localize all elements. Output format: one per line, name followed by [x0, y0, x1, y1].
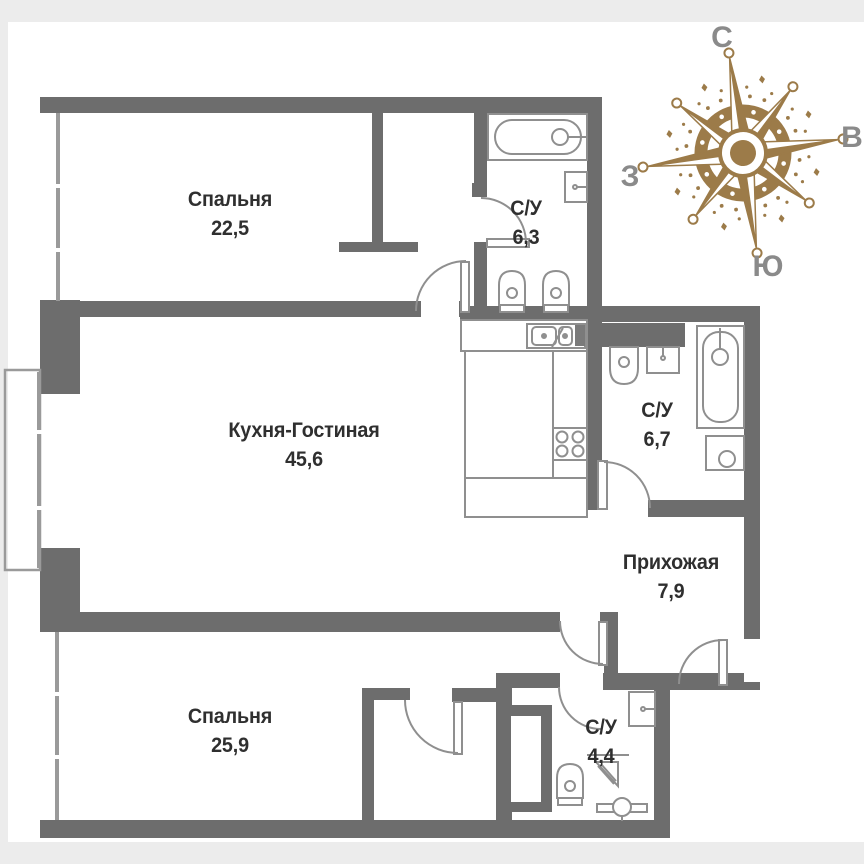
- towel-dryer-icon: [597, 798, 647, 821]
- wall-bedroom1-bottom: [55, 301, 421, 317]
- sink-icon: [565, 172, 587, 202]
- wall-bedroom2-partition: [362, 698, 374, 822]
- bathtub-icon: [488, 114, 587, 160]
- wall-livingroom-bottom: [40, 612, 560, 632]
- kitchen-counter: [461, 320, 587, 517]
- compass-south-label: Ю: [753, 250, 784, 283]
- duct-shaft-inner: [511, 716, 541, 802]
- room-label-bedroom2: Спальня 25,9: [188, 702, 272, 760]
- room-area: 25,9: [188, 731, 272, 760]
- toilet-icon: [499, 271, 525, 312]
- bathtub2-icon: [697, 326, 744, 428]
- room-label-hallway: Прихожая 7,9: [623, 548, 719, 606]
- door-bathroom2: [598, 461, 650, 509]
- entrance-opening: [744, 639, 760, 682]
- pipe-box: [602, 323, 685, 347]
- sink2-icon: [647, 347, 679, 373]
- wall-top: [40, 97, 602, 113]
- toilet2-icon: [610, 347, 638, 384]
- room-name: Спальня: [188, 702, 272, 731]
- wall-bath3-top-left: [512, 673, 560, 688]
- wall-bedroom2-door-segment: [452, 688, 496, 702]
- wall-bath3-right: [654, 688, 670, 822]
- room-area: 4,4: [585, 742, 617, 771]
- room-label-bedroom1: Спальня 22,5: [188, 185, 272, 243]
- room-label-bathroom3: С/У 4,4: [585, 713, 617, 771]
- wall-bedroom2-partition-stub: [362, 688, 410, 700]
- compass-north-label: С: [711, 21, 733, 54]
- wall-bottom: [40, 820, 670, 838]
- sink3-icon: [629, 692, 655, 726]
- wall-bath1-left-lower: [474, 242, 487, 306]
- room-label-kitchen-living: Кухня-Гостиная 45,6: [228, 416, 379, 474]
- kitchen-sink-icon: [527, 324, 585, 348]
- room-label-bathroom2: С/У 6,7: [641, 396, 673, 454]
- room-label-bathroom1: С/У 6,3: [510, 194, 542, 252]
- room-name: Прихожая: [623, 548, 719, 577]
- window-livingroom: [37, 372, 41, 568]
- bidet-icon: [543, 271, 569, 312]
- room-area: 45,6: [228, 445, 379, 474]
- washing-machine-icon: [706, 436, 744, 470]
- wall-partition-bar: [339, 242, 418, 252]
- wall-hall-bottom: [603, 673, 760, 690]
- room-name: Кухня-Гостиная: [228, 416, 379, 445]
- floor-plan-page: С В З Ю Спальня 22,5 С/У 6,3 Кухня-Гости…: [0, 0, 864, 864]
- floor-plan-drawing: С В З Ю: [0, 0, 864, 864]
- compass-east-label: В: [841, 121, 863, 154]
- window-bedroom2: [55, 632, 59, 820]
- stove-icon: [553, 428, 587, 460]
- wall-bath1-hinge-block: [472, 183, 487, 197]
- wall-right-main: [744, 306, 760, 690]
- room-name: С/У: [585, 713, 617, 742]
- wall-partition-vertical: [372, 113, 383, 242]
- compass-rose-icon: [624, 34, 862, 272]
- door-bedroom2: [405, 700, 462, 754]
- windows: [5, 113, 62, 820]
- compass-west-label: З: [621, 160, 640, 193]
- room-name: С/У: [641, 396, 673, 425]
- door-bedroom1: [416, 261, 469, 312]
- room-name: Спальня: [188, 185, 272, 214]
- window-bedroom1: [56, 113, 60, 301]
- toilet3-icon: [557, 764, 583, 805]
- room-area: 7,9: [623, 577, 719, 606]
- bay-window-outline: [5, 370, 40, 570]
- room-area: 22,5: [188, 214, 272, 243]
- door-corridor: [560, 621, 607, 665]
- room-area: 6,7: [641, 425, 673, 454]
- room-name: С/У: [510, 194, 542, 223]
- room-area: 6,3: [510, 223, 542, 252]
- wall-bath2-bottom: [648, 500, 744, 517]
- wall-right-upper: [587, 113, 602, 322]
- wall-left-block-upper: [40, 300, 80, 394]
